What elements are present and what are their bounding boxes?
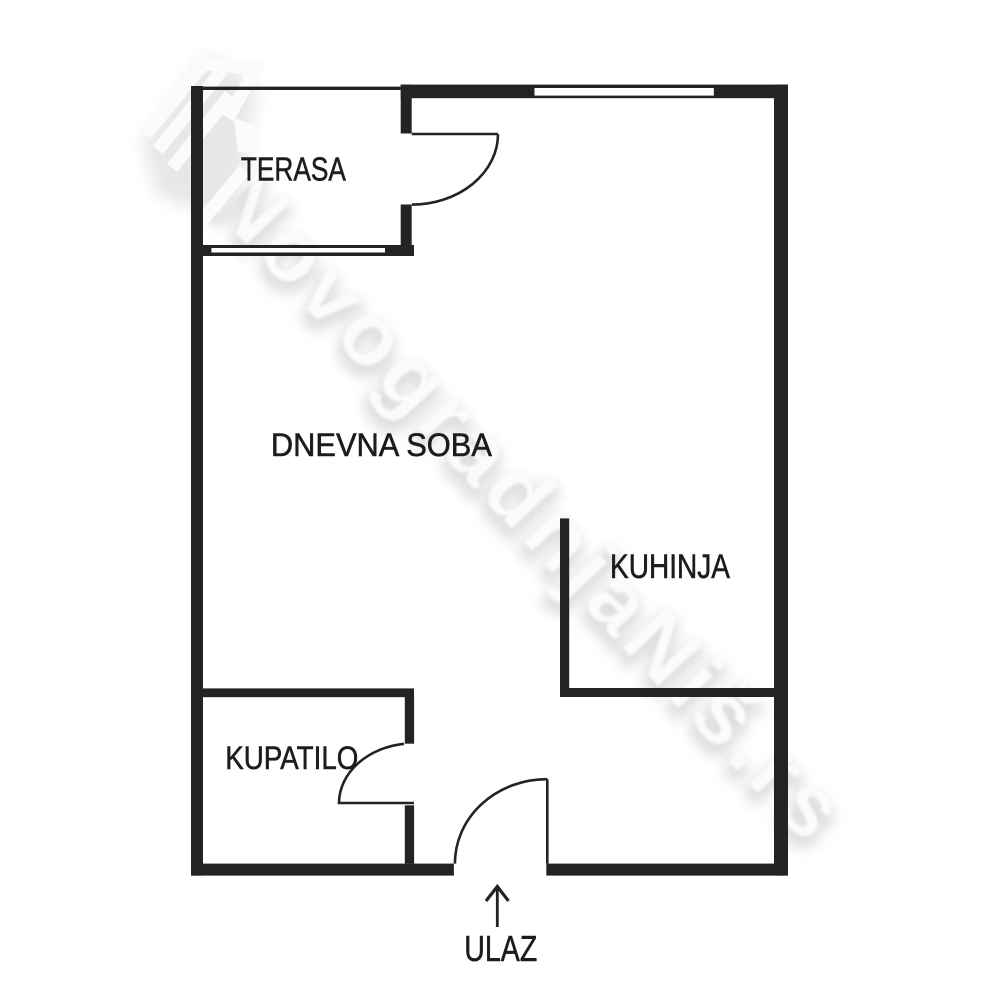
svg-text:KUHINJA: KUHINJA <box>610 548 730 586</box>
svg-text:ULAZ: ULAZ <box>464 928 537 969</box>
svg-text:TERASA: TERASA <box>241 151 347 188</box>
svg-text:DNEVNA SOBA: DNEVNA SOBA <box>271 427 493 463</box>
svg-text:KUPATILO: KUPATILO <box>225 740 358 776</box>
